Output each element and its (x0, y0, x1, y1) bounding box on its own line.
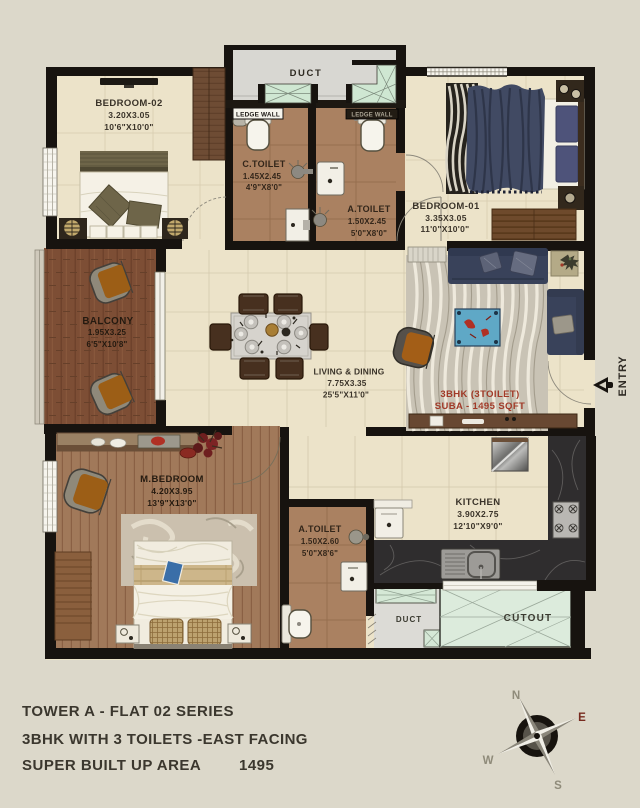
svg-text:3.20X3.05: 3.20X3.05 (108, 110, 149, 120)
svg-text:E: E (578, 712, 586, 724)
svg-text:SUPER BUILT UP AREA: SUPER BUILT UP AREA (22, 757, 201, 774)
svg-text:S: S (554, 780, 562, 792)
svg-text:LEDGE WALL: LEDGE WALL (351, 113, 392, 119)
svg-text:3.35X3.05: 3.35X3.05 (425, 213, 466, 223)
svg-text:25'5"X11'0": 25'5"X11'0" (323, 391, 369, 400)
svg-text:W: W (483, 755, 494, 767)
svg-text:3BHK (3TOILET): 3BHK (3TOILET) (440, 389, 519, 400)
svg-text:1.95X3.25: 1.95X3.25 (88, 328, 127, 337)
svg-text:LEDGE WALL: LEDGE WALL (236, 112, 280, 119)
svg-text:ENTRY: ENTRY (617, 356, 629, 397)
svg-text:A.TOILET: A.TOILET (347, 204, 390, 214)
svg-text:A.TOILET: A.TOILET (298, 524, 341, 534)
svg-text:3BHK WITH 3 TOILETS -EAST FACI: 3BHK WITH 3 TOILETS -EAST FACING (22, 731, 308, 748)
svg-text:KITCHEN: KITCHEN (455, 497, 500, 508)
svg-text:C.TOILET: C.TOILET (242, 159, 285, 169)
svg-text:1.45X2.45: 1.45X2.45 (243, 172, 282, 181)
svg-text:BEDROOM-02: BEDROOM-02 (95, 98, 162, 109)
svg-text:CUTOUT: CUTOUT (504, 613, 553, 624)
svg-text:1.50X2.60: 1.50X2.60 (301, 537, 340, 546)
svg-text:7.75X3.35: 7.75X3.35 (327, 379, 366, 388)
svg-text:BEDROOM-01: BEDROOM-01 (412, 201, 480, 212)
svg-text:11'0"X10'0": 11'0"X10'0" (421, 224, 470, 234)
svg-text:4'9"X8'0": 4'9"X8'0" (246, 183, 282, 192)
svg-text:LIVING & DINING: LIVING & DINING (314, 367, 385, 377)
svg-text:12'10"X9'0": 12'10"X9'0" (453, 521, 502, 531)
svg-text:5'0"X8'0": 5'0"X8'0" (351, 229, 387, 238)
svg-text:10'6"X10'0": 10'6"X10'0" (104, 122, 153, 132)
svg-text:1495: 1495 (239, 757, 274, 774)
svg-text:N: N (512, 690, 520, 702)
svg-text:5'0"X8'6": 5'0"X8'6" (302, 549, 338, 558)
svg-text:1.50X2.45: 1.50X2.45 (348, 217, 387, 226)
svg-text:TOWER A - FLAT 02 SERIES: TOWER A - FLAT 02 SERIES (22, 703, 234, 720)
svg-text:DUCT: DUCT (396, 615, 422, 624)
svg-text:DUCT: DUCT (290, 68, 323, 79)
svg-text:BALCONY: BALCONY (82, 316, 133, 327)
svg-text:SUBA - 1495 SQFT: SUBA - 1495 SQFT (435, 401, 526, 412)
svg-text:6'5"X10'8": 6'5"X10'8" (87, 340, 128, 349)
svg-text:M.BEDROOM: M.BEDROOM (140, 474, 204, 485)
svg-text:4.20X3.95: 4.20X3.95 (151, 486, 192, 496)
svg-text:3.90X2.75: 3.90X2.75 (457, 509, 498, 519)
svg-text:13'9"X13'0": 13'9"X13'0" (147, 498, 196, 508)
